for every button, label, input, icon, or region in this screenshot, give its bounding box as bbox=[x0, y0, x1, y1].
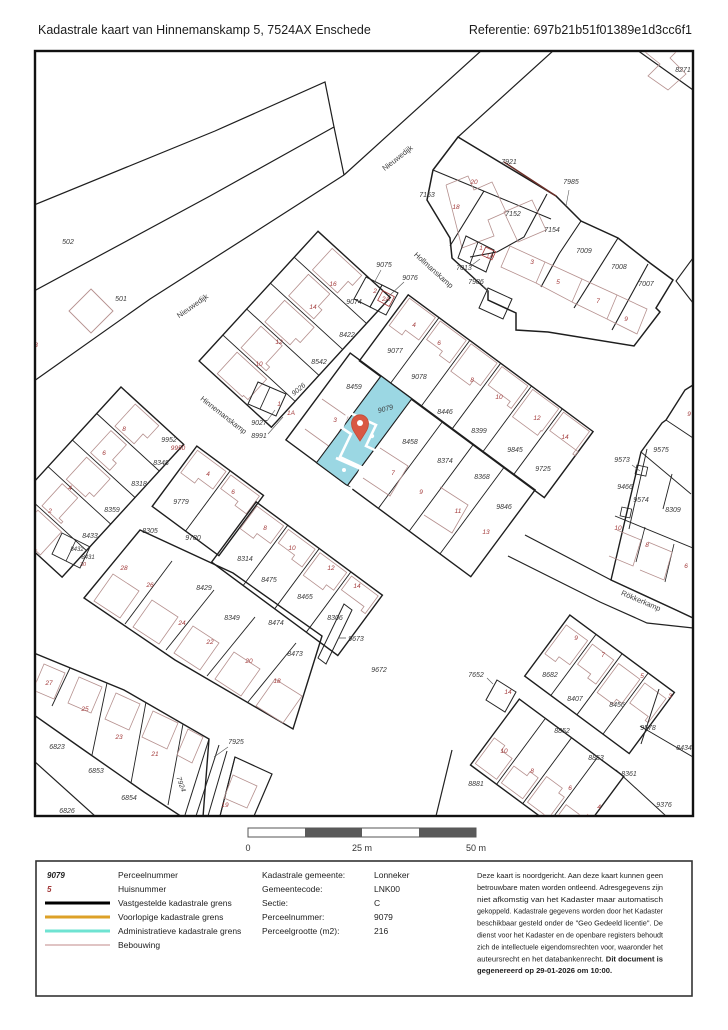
svg-text:9725: 9725 bbox=[535, 466, 551, 473]
svg-text:8407: 8407 bbox=[567, 696, 584, 703]
svg-text:8374: 8374 bbox=[437, 458, 453, 465]
svg-text:50 m: 50 m bbox=[466, 843, 486, 853]
svg-text:Perceelnummer:: Perceelnummer: bbox=[262, 912, 324, 922]
svg-text:4: 4 bbox=[206, 471, 210, 478]
svg-text:9: 9 bbox=[687, 411, 691, 418]
svg-text:27: 27 bbox=[44, 680, 53, 687]
svg-text:8474: 8474 bbox=[268, 620, 284, 627]
svg-text:6: 6 bbox=[102, 450, 106, 457]
svg-text:Sectie:: Sectie: bbox=[262, 898, 288, 908]
svg-text:8446: 8446 bbox=[437, 409, 453, 416]
svg-text:7652: 7652 bbox=[468, 672, 484, 679]
svg-text:7153: 7153 bbox=[419, 192, 435, 199]
svg-text:9573: 9573 bbox=[614, 457, 630, 464]
svg-text:1A: 1A bbox=[486, 253, 494, 260]
svg-text:8271: 8271 bbox=[675, 67, 691, 74]
svg-text:6823: 6823 bbox=[49, 744, 65, 751]
svg-text:6: 6 bbox=[684, 563, 688, 570]
svg-text:7154: 7154 bbox=[544, 227, 560, 234]
svg-text:10: 10 bbox=[288, 545, 296, 552]
svg-text:9574: 9574 bbox=[633, 497, 649, 504]
svg-text:9673: 9673 bbox=[348, 636, 364, 643]
svg-text:Kadastrale gemeente:: Kadastrale gemeente: bbox=[262, 870, 345, 880]
svg-text:Huisnummer: Huisnummer bbox=[118, 884, 166, 894]
svg-text:dienst voor het Kadaster en de: dienst voor het Kadaster en de openbare … bbox=[477, 931, 664, 940]
svg-text:7013: 7013 bbox=[456, 265, 472, 272]
svg-text:C: C bbox=[374, 898, 380, 908]
svg-text:8306: 8306 bbox=[327, 615, 343, 622]
svg-text:26: 26 bbox=[145, 582, 154, 589]
svg-text:12: 12 bbox=[327, 565, 335, 572]
svg-text:8314: 8314 bbox=[237, 556, 253, 563]
svg-text:9077: 9077 bbox=[387, 348, 404, 355]
svg-text:9076: 9076 bbox=[402, 275, 418, 282]
svg-text:Administratieve kadastrale gre: Administratieve kadastrale grens bbox=[118, 926, 241, 936]
svg-text:8: 8 bbox=[122, 426, 126, 433]
svg-text:9846: 9846 bbox=[496, 504, 512, 511]
svg-text:14: 14 bbox=[561, 434, 569, 441]
svg-text:20: 20 bbox=[469, 179, 478, 186]
svg-text:0: 0 bbox=[245, 843, 250, 853]
svg-text:9079: 9079 bbox=[47, 871, 65, 880]
svg-text:8429: 8429 bbox=[196, 585, 212, 592]
svg-text:9078: 9078 bbox=[411, 374, 427, 381]
svg-text:zich de intellectuele eigendom: zich de intellectuele eigendomsrechten v… bbox=[477, 942, 664, 951]
svg-text:8: 8 bbox=[645, 542, 649, 549]
svg-text:501: 501 bbox=[115, 296, 127, 303]
svg-text:14: 14 bbox=[353, 583, 361, 590]
svg-text:Bebouwing: Bebouwing bbox=[118, 940, 160, 950]
svg-text:12: 12 bbox=[533, 415, 541, 422]
svg-text:8349: 8349 bbox=[224, 615, 240, 622]
svg-text:9780: 9780 bbox=[185, 535, 201, 542]
svg-text:8473: 8473 bbox=[287, 651, 303, 658]
svg-text:23: 23 bbox=[114, 734, 123, 741]
svg-text:10: 10 bbox=[495, 394, 503, 401]
svg-text:10: 10 bbox=[255, 361, 263, 368]
svg-text:7008: 7008 bbox=[611, 264, 627, 271]
svg-text:8853: 8853 bbox=[588, 755, 604, 762]
svg-text:5: 5 bbox=[47, 885, 52, 894]
svg-text:6826: 6826 bbox=[59, 808, 75, 815]
svg-text:Gemeentecode:: Gemeentecode: bbox=[262, 884, 322, 894]
svg-text:9376: 9376 bbox=[656, 802, 672, 809]
svg-text:Lonneker: Lonneker bbox=[374, 870, 410, 880]
svg-text:11: 11 bbox=[455, 508, 462, 515]
svg-text:gekoppeld. Kadastrale gegevens: gekoppeld. Kadastrale gegevens worden do… bbox=[477, 907, 663, 916]
svg-text:8: 8 bbox=[470, 377, 474, 384]
svg-text:13: 13 bbox=[482, 529, 490, 536]
svg-text:Kadastrale kaart van Hinnemans: Kadastrale kaart van Hinnemanskamp 5, 75… bbox=[38, 23, 371, 37]
svg-text:3: 3 bbox=[668, 693, 672, 700]
svg-text:8456: 8456 bbox=[609, 702, 625, 709]
svg-text:7985: 7985 bbox=[563, 179, 579, 186]
svg-text:8881: 8881 bbox=[468, 781, 484, 788]
svg-text:2: 2 bbox=[372, 288, 377, 295]
svg-text:9: 9 bbox=[574, 635, 578, 642]
svg-text:5: 5 bbox=[556, 279, 560, 286]
svg-text:9672: 9672 bbox=[371, 667, 387, 674]
svg-text:7: 7 bbox=[596, 298, 600, 305]
svg-text:9074: 9074 bbox=[346, 299, 362, 306]
svg-text:1A: 1A bbox=[287, 410, 295, 417]
svg-text:7152: 7152 bbox=[505, 211, 521, 218]
svg-text:25: 25 bbox=[80, 706, 89, 713]
svg-text:25 m: 25 m bbox=[352, 843, 372, 853]
svg-text:8: 8 bbox=[530, 768, 534, 775]
svg-text:9466: 9466 bbox=[617, 484, 633, 491]
svg-text:2: 2 bbox=[47, 508, 52, 515]
svg-text:8459: 8459 bbox=[346, 384, 362, 391]
svg-text:8359: 8359 bbox=[104, 507, 120, 514]
svg-text:6854: 6854 bbox=[121, 795, 137, 802]
svg-text:4: 4 bbox=[412, 322, 416, 329]
svg-text:8399: 8399 bbox=[471, 428, 487, 435]
svg-text:Referentie: 697b21b51f01389e1d: Referentie: 697b21b51f01389e1d3cc6f1 bbox=[469, 23, 692, 37]
svg-text:10: 10 bbox=[500, 748, 508, 755]
svg-text:2A: 2A bbox=[381, 296, 390, 303]
svg-text:Perceelgrootte (m2):: Perceelgrootte (m2): bbox=[262, 926, 339, 936]
svg-text:7921: 7921 bbox=[501, 159, 517, 166]
svg-text:14: 14 bbox=[504, 689, 512, 696]
svg-text:8348: 8348 bbox=[153, 460, 169, 467]
svg-text:3: 3 bbox=[530, 259, 534, 266]
svg-text:20: 20 bbox=[244, 658, 253, 665]
svg-text:8465: 8465 bbox=[297, 594, 313, 601]
svg-text:6: 6 bbox=[437, 340, 441, 347]
svg-text:9845: 9845 bbox=[507, 447, 523, 454]
svg-text:22: 22 bbox=[205, 639, 214, 646]
svg-text:Deze kaart is noordgericht. Aa: Deze kaart is noordgericht. Aan deze kaa… bbox=[477, 871, 663, 880]
svg-text:auteursrecht en het databanken: auteursrecht en het databankenrecht. Dit… bbox=[477, 954, 663, 963]
svg-text:beschikbaar gesteld onder de ": beschikbaar gesteld onder de "Geo Gedeel… bbox=[477, 919, 663, 928]
svg-text:7: 7 bbox=[601, 652, 605, 659]
svg-text:7009: 7009 bbox=[576, 248, 592, 255]
svg-text:8422: 8422 bbox=[339, 332, 355, 339]
svg-text:8682: 8682 bbox=[542, 672, 558, 679]
svg-text:9075: 9075 bbox=[376, 262, 392, 269]
svg-text:5: 5 bbox=[640, 673, 644, 680]
svg-text:7925: 7925 bbox=[228, 739, 244, 746]
svg-text:niet afkomstig van het Kadaste: niet afkomstig van het Kadaster maar aut… bbox=[477, 895, 663, 904]
svg-text:Perceelnummer: Perceelnummer bbox=[118, 870, 178, 880]
svg-text:21: 21 bbox=[150, 751, 159, 758]
svg-text:216: 216 bbox=[374, 926, 388, 936]
svg-text:8: 8 bbox=[263, 525, 267, 532]
svg-text:gegenereerd op 29-01-2026 om 1: gegenereerd op 29-01-2026 om 10:00. bbox=[477, 966, 612, 975]
svg-text:7: 7 bbox=[391, 470, 395, 477]
svg-text:1: 1 bbox=[277, 401, 281, 408]
svg-text:6853: 6853 bbox=[88, 768, 104, 775]
svg-text:8318: 8318 bbox=[131, 481, 147, 488]
svg-text:8368: 8368 bbox=[474, 474, 490, 481]
svg-text:9027: 9027 bbox=[251, 420, 268, 427]
svg-text:9: 9 bbox=[624, 316, 628, 323]
svg-text:Vastgestelde kadastrale grens: Vastgestelde kadastrale grens bbox=[118, 898, 232, 908]
svg-text:12: 12 bbox=[275, 339, 283, 346]
svg-text:8852: 8852 bbox=[554, 728, 570, 735]
svg-text:7986: 7986 bbox=[468, 279, 484, 286]
svg-text:8475: 8475 bbox=[261, 577, 277, 584]
svg-text:Voorlopige kadastrale grens: Voorlopige kadastrale grens bbox=[118, 912, 223, 922]
svg-text:502: 502 bbox=[62, 239, 74, 246]
svg-text:6: 6 bbox=[231, 489, 235, 496]
svg-text:8991: 8991 bbox=[251, 433, 267, 440]
svg-text:8433: 8433 bbox=[82, 533, 98, 540]
svg-text:7007: 7007 bbox=[638, 281, 655, 288]
svg-text:3: 3 bbox=[333, 417, 337, 424]
svg-text:18: 18 bbox=[452, 204, 460, 211]
svg-text:9952: 9952 bbox=[161, 437, 177, 444]
svg-text:9575: 9575 bbox=[653, 447, 669, 454]
svg-text:8458: 8458 bbox=[402, 439, 418, 446]
svg-text:10: 10 bbox=[614, 525, 622, 532]
svg-text:9779: 9779 bbox=[173, 499, 189, 506]
svg-text:4: 4 bbox=[68, 485, 72, 492]
svg-text:24: 24 bbox=[177, 620, 186, 627]
svg-text:1: 1 bbox=[479, 245, 483, 252]
svg-text:9: 9 bbox=[419, 489, 423, 496]
svg-text:14: 14 bbox=[309, 304, 317, 311]
svg-text:8542: 8542 bbox=[311, 359, 327, 366]
svg-text:betrouwbare maten worden ontle: betrouwbare maten worden ontleend. Adres… bbox=[477, 883, 663, 892]
svg-text:8309: 8309 bbox=[665, 507, 681, 514]
svg-text:19: 19 bbox=[221, 802, 229, 809]
svg-text:LNK00: LNK00 bbox=[374, 884, 400, 894]
svg-text:4: 4 bbox=[597, 804, 601, 811]
svg-text:9950: 9950 bbox=[171, 445, 186, 452]
svg-text:16: 16 bbox=[329, 281, 337, 288]
svg-text:6: 6 bbox=[568, 785, 572, 792]
svg-text:18: 18 bbox=[273, 678, 281, 685]
svg-text:28: 28 bbox=[119, 565, 128, 572]
svg-text:9079: 9079 bbox=[374, 912, 393, 922]
